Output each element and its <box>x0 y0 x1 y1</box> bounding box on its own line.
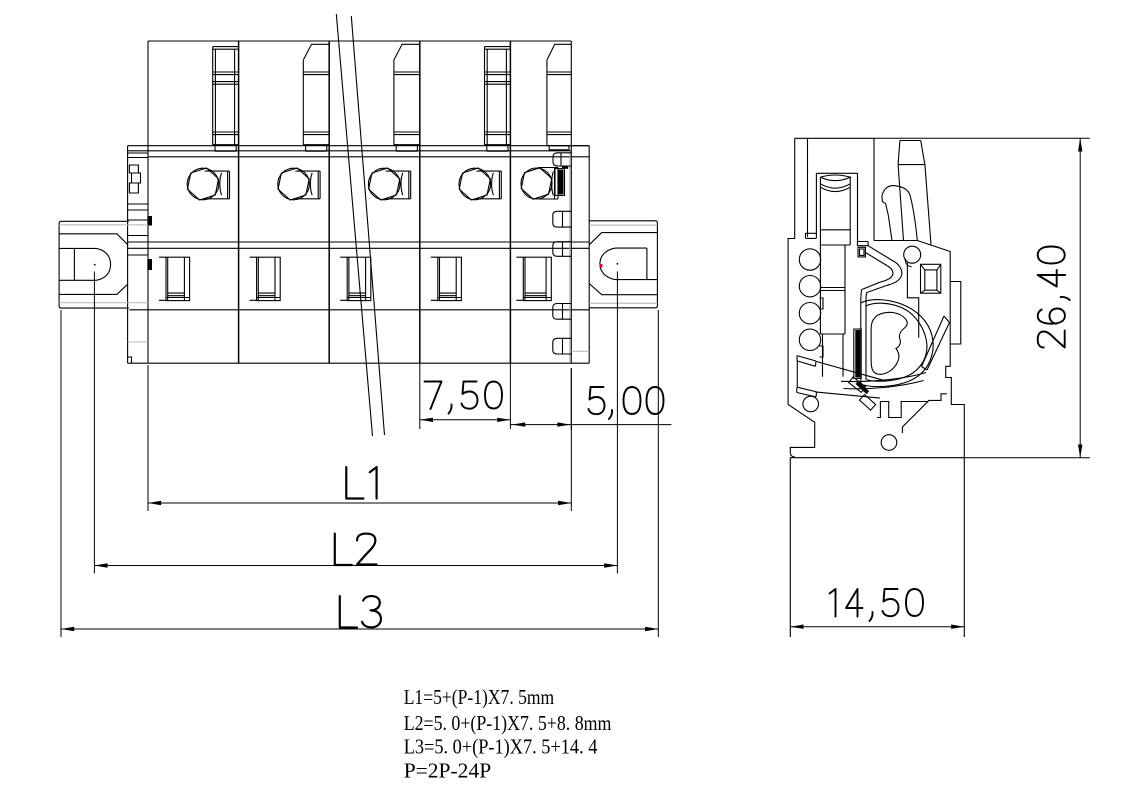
svg-text:L1=5+(P-1)X7. 5mm: L1=5+(P-1)X7. 5mm <box>404 685 555 709</box>
svg-text:L2=5. 0+(P-1)X7. 5+8. 8mm: L2=5. 0+(P-1)X7. 5+8. 8mm <box>404 711 612 735</box>
svg-text:L3=5. 0+(P-1)X7. 5+14. 4: L3=5. 0+(P-1)X7. 5+14. 4 <box>404 735 598 759</box>
svg-text:P=2P-24P: P=2P-24P <box>404 758 492 782</box>
